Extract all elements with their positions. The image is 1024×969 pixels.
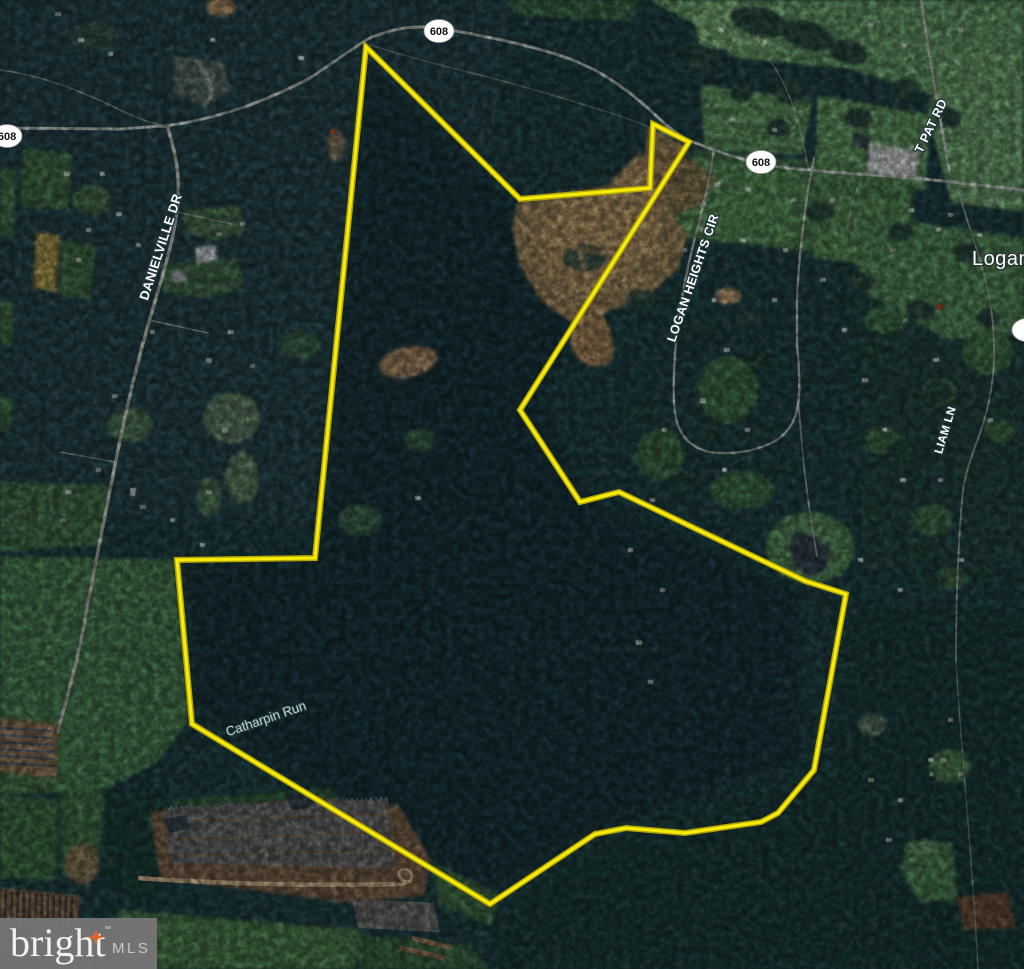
svg-text:608: 608 <box>752 157 770 169</box>
svg-text:™: ™ <box>104 926 111 933</box>
svg-text:MLS: MLS <box>112 940 150 957</box>
svg-text:608: 608 <box>0 131 16 143</box>
svg-text:bright: bright <box>10 920 106 965</box>
svg-text:Logan: Logan <box>972 248 1024 270</box>
svg-text:608: 608 <box>430 26 448 38</box>
